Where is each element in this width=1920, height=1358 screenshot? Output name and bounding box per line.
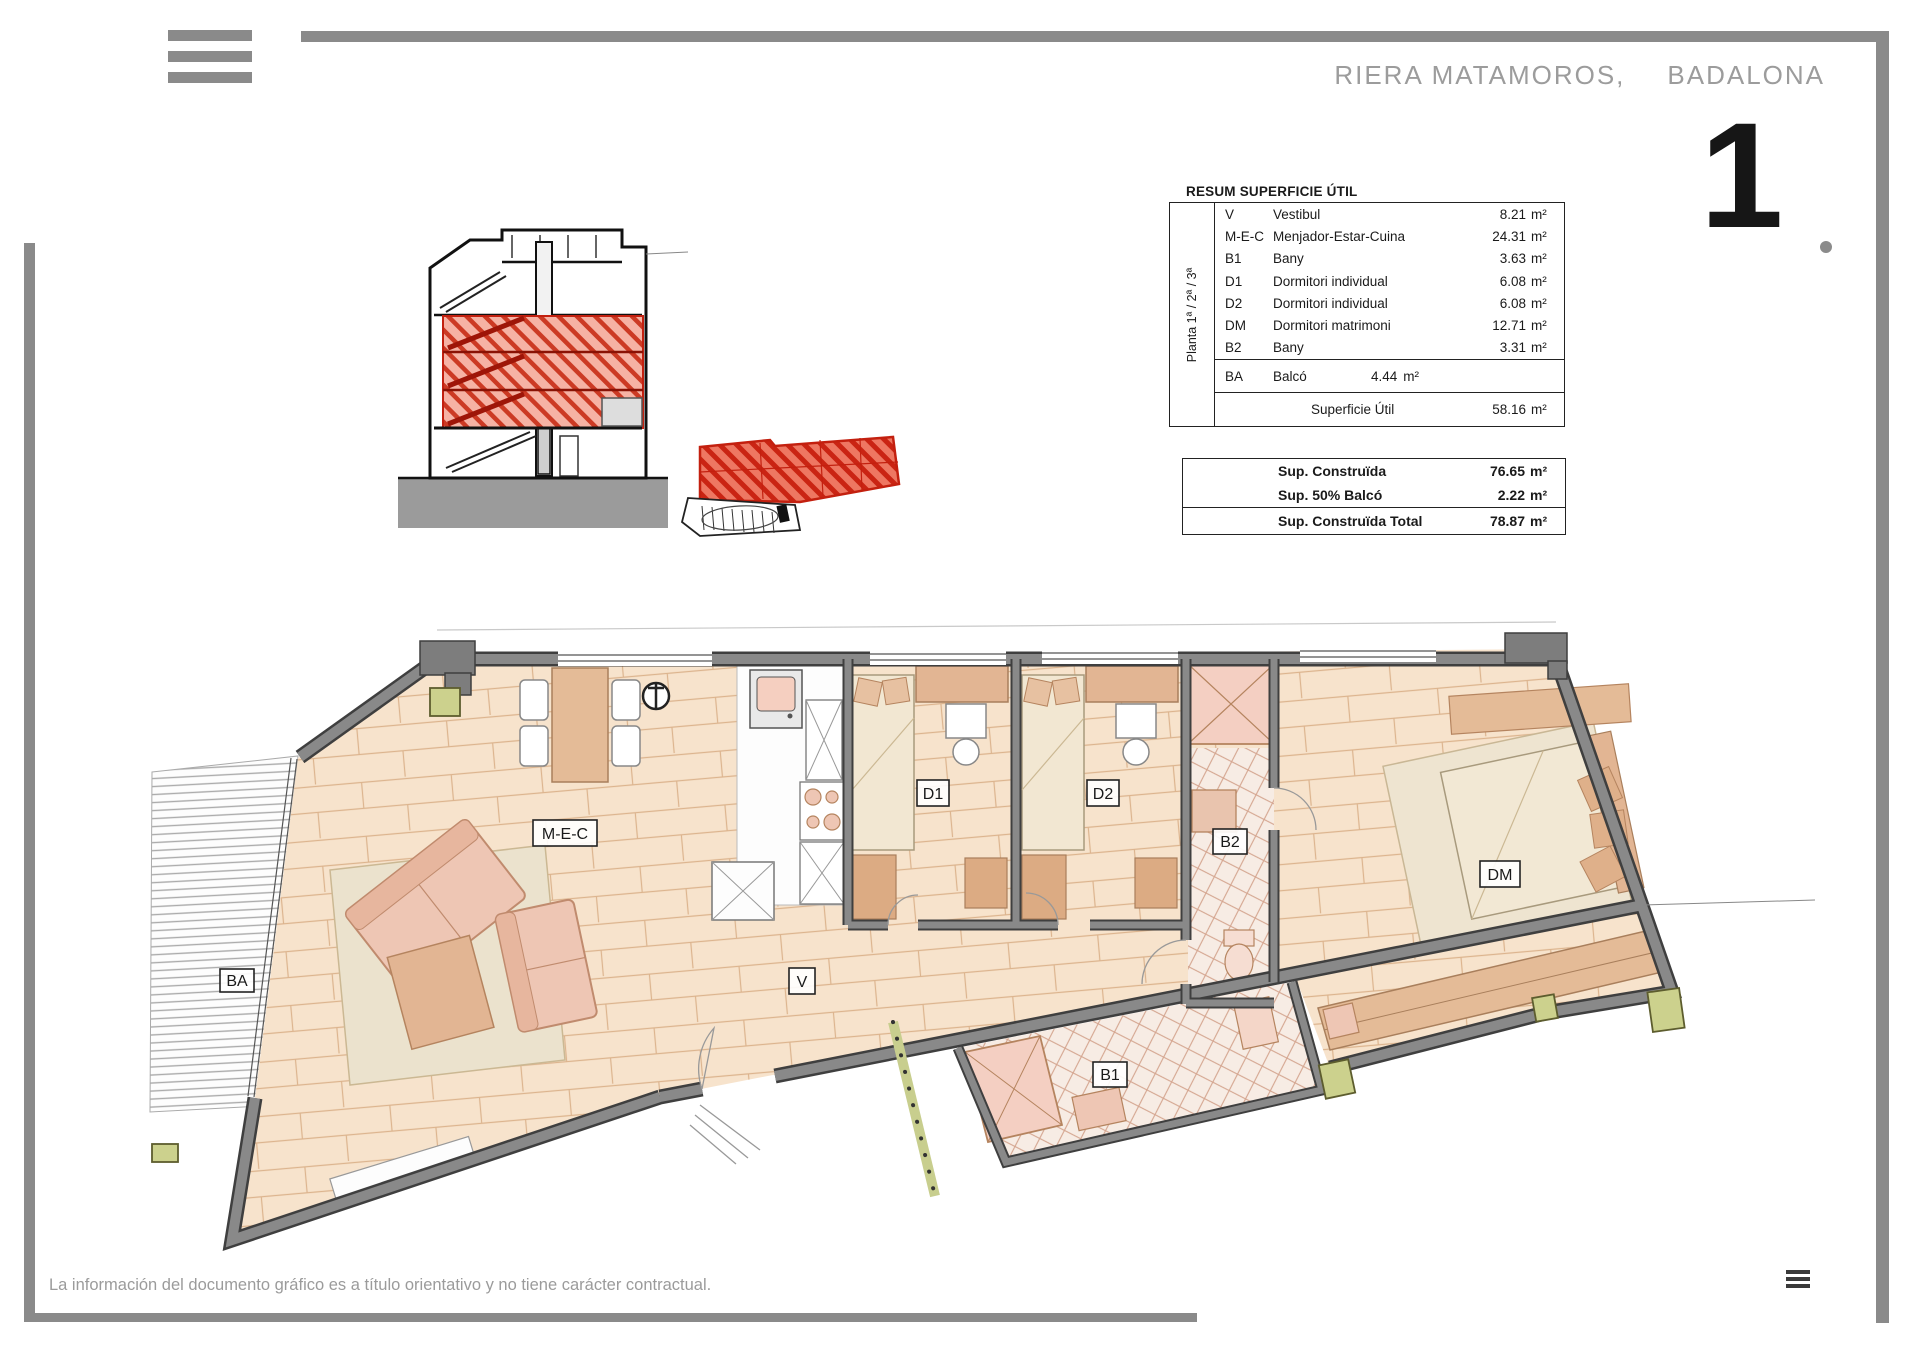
building-section-drawing <box>398 230 688 528</box>
floor-plan-sheet: M-E-C V D1 D2 B2 DM B1 BA <box>0 0 1920 1358</box>
label-v: V <box>797 974 808 991</box>
label-b1: B1 <box>1100 1067 1120 1084</box>
key-plan-drawing <box>682 437 899 536</box>
label-mec: M-E-C <box>542 826 588 843</box>
label-ba: BA <box>226 973 248 990</box>
label-d2: D2 <box>1093 786 1114 803</box>
label-b2: B2 <box>1220 834 1240 851</box>
label-dm: DM <box>1488 867 1513 884</box>
floor-plan: M-E-C V D1 D2 B2 DM B1 BA <box>150 622 1815 1240</box>
label-d1: D1 <box>923 786 944 803</box>
